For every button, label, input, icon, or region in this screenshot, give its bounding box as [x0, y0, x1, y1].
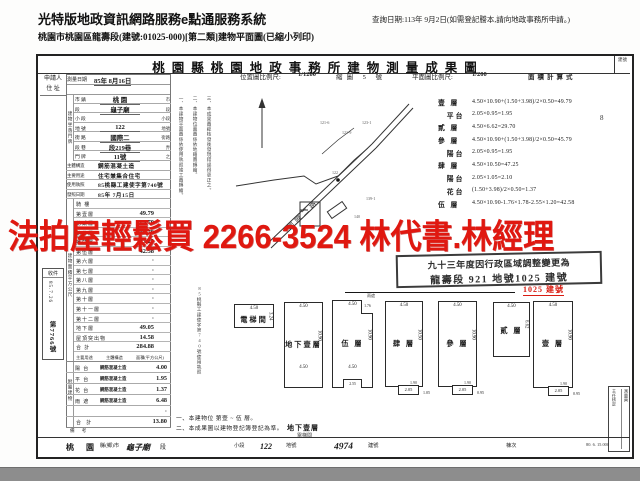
intake-box: 收件 85.7.26 第7766號 [42, 268, 64, 360]
floor-plan-box: 4.50 10.50 肆 層 1.90 2.05 1.05 [385, 301, 423, 387]
system-title: 光特版地政資訊網路服務e點通服務系統 [38, 9, 266, 28]
width-dimension: 4.50 [386, 303, 422, 308]
attached-structure: 鋼筋混凝土造 [100, 365, 126, 371]
attached-structures: 主要用途 主體構造 面積(平方公尺) 陽 台 鋼筋混凝土造 4.00 平 台 鋼… [66, 352, 171, 417]
formula-label: 肆 層 [438, 160, 468, 170]
canopy-notch: 1.76 [361, 300, 373, 314]
balcony-offset-dimension: 1.90 [464, 380, 471, 385]
table-row: 主體構造 鋼筋混凝土造 [66, 161, 171, 171]
attached-use: 平 台 [75, 376, 89, 383]
table-row: 段 龜子廟 段 [74, 104, 171, 114]
table-row: 地 號 122 地號 [74, 123, 171, 133]
intake-title: 收件 [43, 270, 63, 278]
formula-row: 壹 層 4.50×10.90+(1.50+3.98)/2×0.50=49.79 [438, 96, 626, 109]
lot-number: 123-1 [362, 120, 371, 125]
attached-total-value: 13.80 [153, 418, 167, 425]
formula-expression: 2.05×0.95=1.95 [472, 149, 512, 155]
floor-label: 第十二層 [76, 316, 100, 323]
table-row: 屋頂突出物 14.58 [74, 333, 171, 343]
table-row: 地下層 49.05 [74, 323, 171, 333]
north-arrow-head [259, 98, 266, 108]
row-label: 段 [75, 106, 80, 113]
balcony-depth-dimension: 1.05 [423, 390, 430, 395]
row-value: 鋼筋混凝土造 [98, 162, 135, 170]
balcony-bump: 2.05 [548, 386, 569, 396]
formula-row: 肆 層 4.50×10.50=47.25 [438, 159, 626, 172]
floor-plan-box: 4.50 10.90 地下壹層 4.50 [284, 302, 323, 388]
row-suffix: 市 [166, 97, 170, 103]
attached-use: 雨 遮 [75, 398, 89, 405]
coord-rows: 市 鎮 桃 園 市 段 龜子廟 段 小 段 小段 地 號 122 地號 街 路 … [74, 94, 171, 161]
scanned-survey-page: { "header": { "system_title": "光特版地政資訊網路… [0, 0, 640, 480]
balcony-bump: 2.05 [452, 385, 473, 395]
floor-plan-box: 4.50 10.90 壹 層 1.90 2.05 0.95 [533, 301, 573, 388]
subsection-label: 小段 [234, 442, 244, 449]
vertical-note: 一、本建物平面圖係依使用執照竣工圖轉繪。 [178, 96, 184, 208]
attached-area-header: 面積(平方公尺) [136, 355, 164, 361]
bottom-notch: 2.55 [343, 379, 362, 388]
remark-row: 備 考 [66, 428, 171, 437]
inner-dimension: 4.50 [285, 365, 322, 370]
attached-area: · [165, 408, 167, 415]
plan-note-1: 一、本建物位 第壹 ~ 伍 層。 [176, 413, 257, 422]
floor-plan-label: 伍 層 [333, 339, 372, 349]
row-value: 122 [100, 124, 140, 132]
floor-area-value: · [114, 257, 154, 264]
attached-area: 6.48 [156, 397, 167, 404]
section-label: 段 [160, 442, 166, 451]
table-row: 段 巷 段219巷 弄 [74, 142, 171, 152]
row-label: 發照日期 [67, 192, 85, 198]
attached-area: 4.00 [156, 364, 167, 371]
lot-number-value: 122 [260, 442, 272, 451]
row-value: 住宅兼集合住宅 [98, 172, 141, 180]
formula-expression: 4.50×10.90+(1.50+3.98)/2×0.50=49.79 [472, 99, 572, 105]
row-label: 段 巷 [75, 144, 86, 151]
coord-group-label: 建物坐落門牌 [66, 94, 74, 161]
floor-label: 地下層 [76, 325, 94, 332]
height-dimension: 10.90 [567, 329, 572, 340]
row-label: 市 鎮 [75, 96, 86, 103]
floor-label: 屋頂突出物 [76, 335, 106, 342]
width-dimension: 4.50 [235, 306, 273, 311]
floor-area-value: · [114, 295, 154, 302]
lot-number: 121-9 [342, 130, 351, 135]
scale-bar: 位置圖比例尺: 1/1200 縮圖 5 號 平面圖比例尺: 1/200 面積計算… [240, 68, 630, 84]
plan-scale-value: 1/200 [472, 71, 487, 78]
scan-edge-band [0, 467, 640, 481]
attached-structure: 鋼筋混凝土造 [100, 376, 126, 382]
row-label: 街 路 [75, 134, 86, 141]
formula-expression: (1.50+3.98)/2×0.50=1.37 [472, 187, 536, 193]
row-suffix: 弄 [166, 145, 170, 151]
location-scale-label: 位置圖比例尺: [240, 71, 281, 81]
formula-label: 陽台 [438, 148, 468, 158]
formula-label: 伍 層 [438, 199, 468, 209]
floor-label: 合 計 [76, 344, 90, 351]
formula-row: 平台 2.05×0.95=1.95 [438, 109, 626, 122]
applicant-label: 申請人 [40, 74, 66, 84]
inner-dimension: 4.50 [333, 365, 372, 370]
canopy-label: 雨遮 [367, 293, 375, 299]
row-value: 85年 7月15日 [98, 191, 135, 199]
attached-structure: 鋼筋混凝土造 [100, 398, 126, 404]
row-label: 地 號 [75, 125, 86, 132]
vertical-note: 三、本成果圖經核發後發現錯誤得更正之。 [206, 96, 212, 208]
table-row: 第十一層 · [74, 304, 171, 314]
attached-area: 1.95 [156, 375, 167, 382]
floor-plan-label: 地下壹層 [285, 340, 322, 350]
section-value: 龜子廟 [126, 442, 150, 453]
row-label: 主要用途 [67, 173, 85, 179]
survey-date-label: 測量日期 [67, 76, 87, 83]
formula-row: 陽台 2.05×0.95=1.95 [438, 147, 626, 160]
formula-label: 平台 [438, 110, 468, 120]
county-label: 縣(鄉)市 [100, 442, 119, 449]
formula-expression: 4.50×10.90+(1.50+3.98)/2×0.50=45.79 [472, 137, 572, 143]
floor-area-value: 284.88 [114, 343, 154, 350]
attached-total-label: 合 計 [76, 419, 93, 426]
floor-plan-box: 4.50 10.90 參 層 1.90 2.05 0.95 [438, 301, 477, 387]
vertical-note: 二、本建物位置圖係依地籍圖轉繪。 [192, 96, 198, 196]
floor-label: 第八層 [76, 277, 94, 284]
formula-expression: 4.50×6.62=29.70 [472, 124, 516, 130]
table-row: 門 牌 11號 之 [74, 151, 171, 161]
balcony-offset-dimension: 1.90 [560, 381, 567, 386]
formula-row: 陽台 2.05×1.05=2.10 [438, 172, 626, 185]
balcony-depth-dimension: 0.95 [573, 391, 580, 396]
width-dimension: 4.50 [285, 304, 322, 309]
formula-label: 壹 層 [438, 97, 468, 107]
attached-use: 花 台 [75, 387, 89, 394]
floor-area-value: · [114, 267, 154, 274]
map-sheet: 縮圖 5 號 [336, 71, 386, 81]
floor-plan-label: 電梯間 [235, 315, 273, 325]
red-handwritten-note: 1025 建號 [523, 284, 564, 296]
floor-plan-label: 壹 層 [534, 339, 572, 349]
floor-plan-label: 貳 層 [494, 326, 529, 336]
row-suffix: 小段 [161, 116, 170, 122]
balcony-depth-dimension: 0.95 [477, 390, 484, 395]
floor-area-value: 14.58 [114, 334, 154, 341]
formula-row: 貳 層 4.50×6.62=29.70 [438, 121, 626, 134]
vertical-note: 85桃縣工建使字第740號使用執照 [196, 286, 202, 382]
floor-area-value: · [114, 315, 154, 322]
width-dimension: 4.50 [439, 303, 476, 308]
building-number-value: 4974 [334, 442, 353, 453]
balcony-offset-dimension: 1.90 [410, 380, 417, 385]
table-row: 第九層 · [74, 285, 171, 295]
floor-plan-label: 參 層 [439, 339, 476, 349]
height-dimension: 10.90 [367, 329, 372, 340]
table-row: 街 路 國際二 街路 [74, 132, 171, 142]
formula-label: 參 層 [438, 135, 468, 145]
attached-use: 陽 台 [75, 365, 89, 372]
floor-label: 第九層 [76, 287, 94, 294]
lot-number: 139-1 [366, 196, 375, 201]
lot-number: 122 [332, 170, 338, 175]
table-row: 雨 遮 鋼筋混凝土造 6.48 [66, 395, 171, 406]
balcony-bump: 2.05 [398, 385, 419, 395]
formula-label: 花台 [438, 186, 468, 196]
lot-number: 121-6 [320, 120, 329, 125]
floor-area-value: · [114, 286, 154, 293]
attached-use-header: 主要用途 [76, 355, 93, 361]
table-row: 平 台 鋼筋混凝土造 1.95 [66, 373, 171, 384]
intake-date: 85.7.26 [47, 281, 52, 319]
floor-area-value: · [114, 276, 154, 283]
floor-label: 第十層 [76, 296, 94, 303]
boundary-line [236, 176, 338, 186]
table-row: 第七層 · [74, 266, 171, 276]
attached-area: 1.37 [156, 386, 167, 393]
point-marker [336, 178, 340, 182]
attached-structure-header: 主體構造 [106, 355, 123, 361]
table-row: · [66, 406, 171, 417]
formula-expression: 2.05×0.95=1.95 [472, 111, 512, 117]
building-number-label: 建號 [368, 442, 378, 449]
floor-plan-label: 肆 層 [386, 339, 422, 349]
row-label: 小 段 [75, 115, 86, 122]
width-dimension: 4.50 [494, 304, 529, 309]
formula-label: 陽台 [438, 173, 468, 183]
table-row: 第十層 · [74, 294, 171, 304]
row-label: 使用執照 [67, 182, 85, 188]
attached-rows: 陽 台 鋼筋混凝土造 4.00 平 台 鋼筋混凝土造 1.95 花 台 鋼筋混凝… [66, 362, 171, 417]
info-rows: 主體構造 鋼筋混凝土造 主要用途 住宅兼集合住宅 使用執照 85桃縣工建使字第7… [66, 161, 171, 199]
row-value: 85桃縣工建使字第740號 [98, 181, 163, 189]
row-label: 主體構造 [67, 163, 85, 169]
table-row: 騎 樓 [74, 199, 171, 209]
agent-watermark: 法拍屋輕鬆買 2266-3524 林代書.林經理 [8, 209, 636, 258]
formula-expression: 4.50×10.90-1.76×1.78-2.55×1.20=42.58 [472, 200, 574, 206]
floor-area-value: · [114, 305, 154, 312]
plan-scale-label: 平面圖比例尺: [412, 71, 453, 81]
attached-header: 主要用途 主體構造 面積(平方公尺) [66, 352, 171, 362]
floor-area-value: 49.05 [114, 324, 154, 331]
floor-plan-box: 4.50 3.24 電梯間 [234, 304, 274, 328]
floor-plan-box: 4.50 6.62 貳 層 [493, 302, 530, 357]
table-row: 市 鎮 桃 園 市 [74, 94, 171, 104]
scan-artifact-line [345, 292, 515, 293]
formula-row: 花台 (1.50+3.98)/2×0.50=1.37 [438, 185, 626, 198]
floor-label: 第十一層 [76, 306, 100, 313]
formula-row: 參 層 4.50×10.90+(1.50+3.98)/2×0.50=45.79 [438, 134, 626, 147]
row-suffix: 段 [166, 107, 170, 113]
table-row: 第十二層 · [74, 314, 171, 324]
block-label: 棟次 [506, 442, 516, 449]
formula-expression: 2.05×1.05=2.10 [472, 175, 512, 181]
lot-number-label: 地號 [286, 442, 296, 449]
table-row: 花 台 鋼筋混凝土造 1.37 [66, 384, 171, 395]
formula-header: 面積計算式 [528, 71, 576, 81]
table-row: 使用執照 85桃縣工建使字第740號 [66, 180, 171, 190]
area-formulas: 壹 層 4.50×10.90+(1.50+3.98)/2×0.50=49.79 … [438, 96, 626, 210]
lot-numbers: 121-6 121-9 123-1 122 140 139-1 [320, 120, 375, 219]
applicant-cell: 申請人 住 址 [40, 74, 67, 96]
address-label: 住 址 [40, 84, 66, 94]
road-branch-2 [376, 108, 413, 148]
location-scale-value: 1/1200 [298, 71, 316, 78]
attached-structure: 鋼筋混凝土造 [100, 387, 126, 393]
table-row: 陽 台 鋼筋混凝土造 4.00 [66, 362, 171, 373]
intake-number: 第7766號 [46, 321, 56, 359]
floor-label: 第七層 [76, 268, 94, 275]
table-row: 主要用途 住宅兼集合住宅 [66, 171, 171, 181]
bottom-strip: 桃 園 縣(鄉)市 龜子廟 段 小段 122 地號 4974 建號 棟次 80.… [38, 438, 630, 455]
document-subtitle: 桃園市桃園區龍壽段(建號:01025-000)[第二類]建物平面圖(已縮小列印) [38, 30, 314, 43]
table-row: 小 段 小段 [74, 113, 171, 123]
row-suffix: 之 [166, 154, 170, 160]
formula-expression: 4.50×10.50=47.25 [472, 162, 519, 168]
table-row: 發照日期 85年 7月15日 [66, 190, 171, 200]
row-suffix: 街路 [161, 135, 170, 141]
row-suffix: 地號 [161, 126, 170, 132]
width-dimension: 4.50 [534, 303, 572, 308]
floor-label: 第六層 [76, 258, 94, 265]
floor-plan-box: 4.50 10.90 伍 層 4.50 1.76 雨遮 2.55 [332, 300, 373, 388]
row-label: 門 牌 [75, 153, 86, 160]
table-row: 合 計 284.88 [74, 342, 171, 352]
table-row: 第八層 · [74, 275, 171, 285]
floor-label: 騎 樓 [76, 201, 90, 208]
county-value: 桃 園 [66, 442, 99, 453]
road-branch-1 [372, 104, 409, 144]
query-date-note: 查詢日期:113年 9月2日(如需登記謄本,請向地政事務所申請。) [372, 14, 634, 25]
formula-label: 貳 層 [438, 122, 468, 132]
attached-total-row: 合 計 13.80 [66, 417, 171, 428]
form-number: 80. 6. 15.000 [586, 442, 609, 447]
plan-note-2: 二、本成果圖以建物登記簿登記為準。 [176, 423, 283, 432]
